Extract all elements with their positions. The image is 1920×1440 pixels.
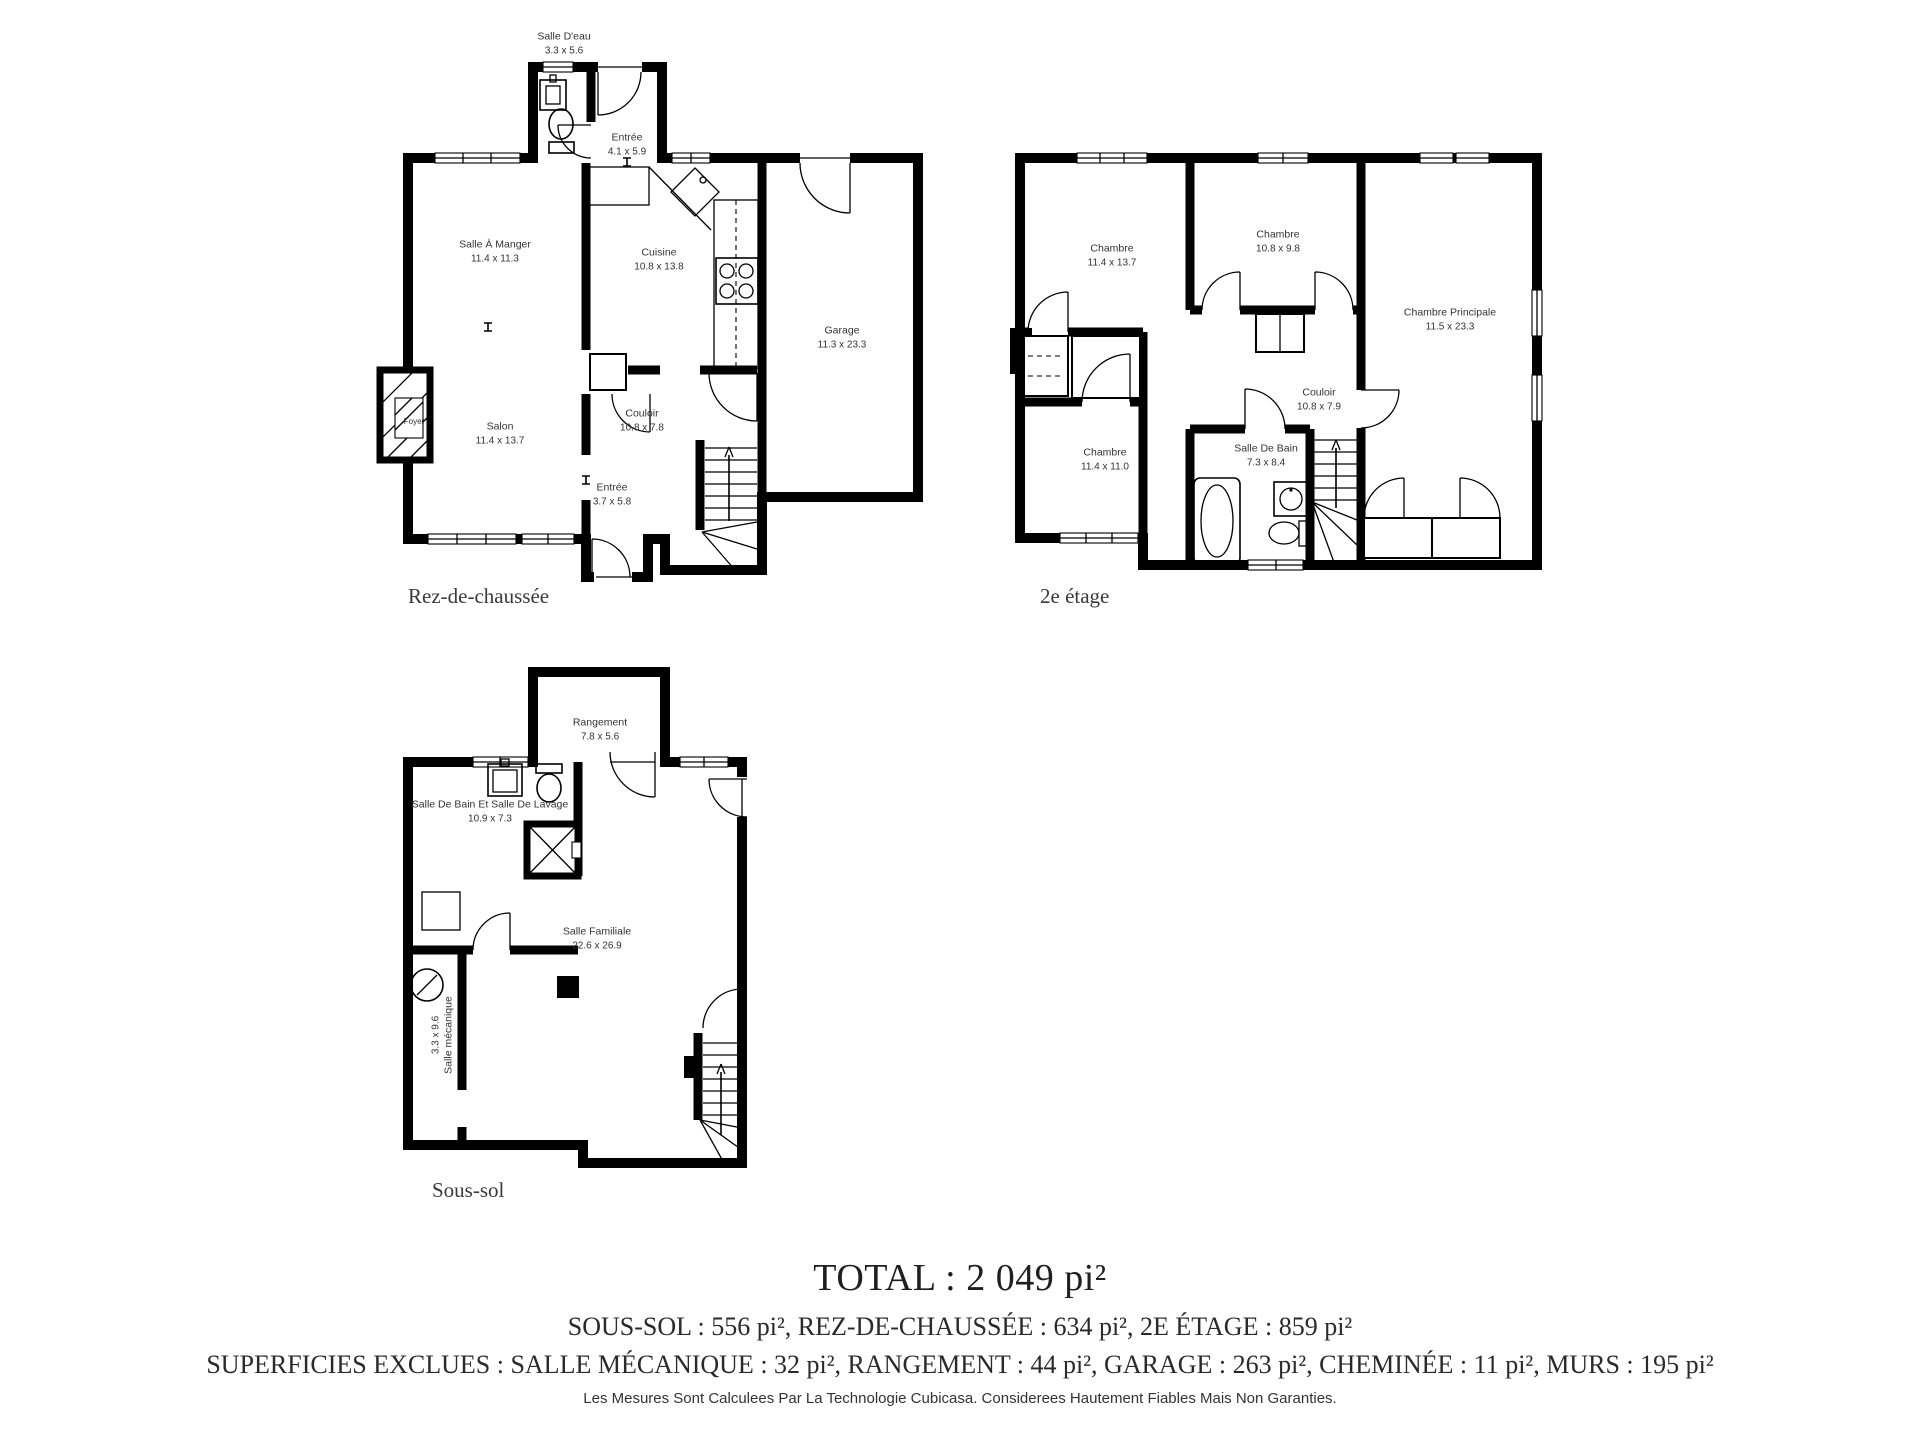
room-label-chambre-1: Chambre 11.4 x 13.7 <box>1088 243 1137 270</box>
kitchen-sink-icon <box>671 168 719 216</box>
shower-icon <box>527 824 581 876</box>
floor-label-2e-etage: 2e étage <box>1040 584 1109 609</box>
floor-areas: SOUS-SOL : 556 pi², REZ-DE-CHAUSSÉE : 63… <box>0 1312 1920 1342</box>
window-icon <box>473 757 728 767</box>
room-label-salon: Salon 11.4 x 13.7 <box>476 421 525 448</box>
room-label-garage: Garage 11.3 x 23.3 <box>818 325 867 352</box>
floorplan-sous-sol <box>408 672 748 1163</box>
room-label-salle-mecanique: 3.3 x 9.6 Salle mécanique <box>430 996 457 1074</box>
floorplan-page: Salle D'eau 3.3 x 5.6 Entrée 4.1 x 5.9 S… <box>0 0 1920 1440</box>
stove-icon <box>716 258 758 304</box>
room-label-entree-haut: Entrée 4.1 x 5.9 <box>608 132 646 159</box>
sink-icon <box>1274 482 1308 516</box>
room-label-salle-de-bain: Salle De Bain 7.3 x 8.4 <box>1234 443 1298 470</box>
room-label-chambre-3: Chambre 11.4 x 11.0 <box>1081 447 1129 474</box>
room-label-entree-bas: Entrée 3.7 x 5.8 <box>593 482 631 509</box>
room-label-rangement: Rangement 7.8 x 5.6 <box>573 717 627 744</box>
fireplace-icon <box>380 370 430 460</box>
sink-icon <box>488 759 522 796</box>
closet-box <box>590 354 626 390</box>
floorplan-rez-de-chaussee <box>380 61 918 583</box>
door-arcs <box>473 752 747 1028</box>
stairs-icon <box>700 1043 742 1163</box>
floorplan-2e-etage <box>1010 153 1542 570</box>
floorplans-canvas <box>0 0 1920 1440</box>
disclaimer-text: Les Mesures Sont Calculees Par La Techno… <box>0 1390 1920 1407</box>
room-label-couloir-rez: Couloir 10.8 x 7.8 <box>620 408 664 435</box>
bathtub-icon <box>1194 478 1240 564</box>
column-icon <box>557 976 579 998</box>
toilet-icon <box>549 109 574 153</box>
room-label-chambre-principale: Chambre Principale 11.5 x 23.3 <box>1404 307 1496 334</box>
floor-label-sous-sol: Sous-sol <box>432 1178 504 1203</box>
sink-icon <box>540 75 566 110</box>
excluded-areas: SUPERFICIES EXCLUES : SALLE MÉCANIQUE : … <box>0 1350 1920 1380</box>
toilet-icon <box>1269 521 1308 546</box>
stairs-icon <box>1312 440 1357 565</box>
room-label-cuisine: Cuisine 10.8 x 13.8 <box>634 247 683 274</box>
total-area: TOTAL : 2 049 pi² <box>0 1256 1920 1300</box>
room-label-chambre-2: Chambre 10.8 x 9.8 <box>1256 229 1300 256</box>
toilet-icon <box>536 764 562 802</box>
room-label-salle-a-manger: Salle À Manger 11.4 x 11.3 <box>459 239 531 266</box>
room-label-couloir-etage: Couloir 10.8 x 7.9 <box>1297 387 1341 414</box>
stairs-icon <box>702 447 757 570</box>
laundry-appliance <box>422 892 460 930</box>
room-label-salle-familiale: Salle Familiale 22.6 x 26.9 <box>563 926 631 953</box>
room-label-salle-deau: Salle D'eau 3.3 x 5.6 <box>537 31 590 58</box>
area-summary: TOTAL : 2 049 pi² SOUS-SOL : 556 pi², RE… <box>0 1256 1920 1407</box>
floor-label-rez-de-chaussee: Rez-de-chaussée <box>408 584 549 609</box>
room-label-salle-de-bain-lavage: Salle De Bain Et Salle De Lavage 10.9 x … <box>412 799 568 826</box>
room-label-foyer: Foyer <box>404 417 424 427</box>
closet-box <box>1024 314 1500 558</box>
